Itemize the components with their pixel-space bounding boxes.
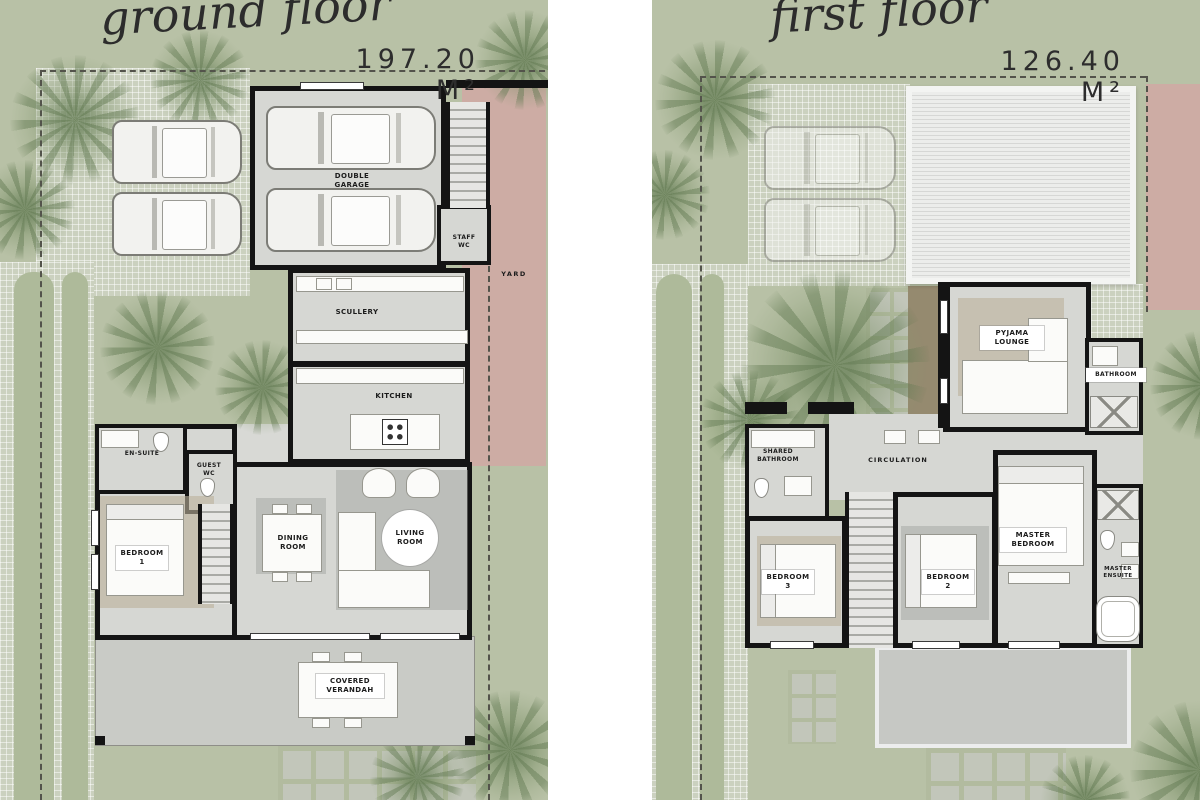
verandah-label: COVERED VERANDAH — [316, 674, 384, 698]
parked-car — [112, 192, 242, 256]
boundary-dashed-left — [700, 76, 702, 800]
palm-tree — [150, 30, 250, 130]
sofa — [962, 360, 1068, 414]
dining-chair — [296, 572, 312, 582]
dining-chair — [272, 572, 288, 582]
armchair — [362, 468, 396, 498]
kitchen-counter — [296, 368, 464, 384]
bathroom-label: BATHROOM — [1086, 368, 1146, 382]
bench — [884, 430, 906, 444]
grass-lane — [700, 274, 724, 800]
dining-chair — [296, 504, 312, 514]
window — [91, 554, 99, 590]
dining-label: DINING ROOM — [272, 534, 314, 552]
bedroom1-label: BEDROOM 1 — [116, 546, 168, 570]
sliding-door — [380, 633, 460, 640]
pyjama-lounge-label: PYJAMA LOUNGE — [980, 326, 1044, 350]
sink — [336, 278, 352, 290]
parked-car-below — [764, 198, 896, 262]
panel-divider — [548, 0, 652, 800]
kitchen-label: KITCHEN — [364, 392, 424, 401]
armchair — [406, 468, 440, 498]
entry-stairs — [446, 102, 490, 208]
exterior-path — [1091, 284, 1143, 338]
master-bedroom-label: MASTER BEDROOM — [1000, 528, 1066, 552]
first-floor-area: 126.40 M² — [945, 46, 1125, 108]
bench — [1008, 572, 1070, 584]
grass-lane — [62, 272, 88, 800]
sofa — [338, 570, 430, 608]
vanity — [1092, 346, 1118, 366]
shower — [1097, 490, 1139, 520]
bed-pillows — [905, 534, 921, 608]
window — [91, 510, 99, 546]
wall-segment — [808, 402, 854, 414]
shower — [1090, 396, 1138, 428]
grass-lane — [656, 274, 692, 800]
bench — [918, 430, 940, 444]
living-label: LIVING ROOM — [382, 510, 438, 566]
interior-stairs — [198, 504, 234, 604]
palm-tree — [100, 290, 215, 405]
ground-floor-area: 197.20 M² — [300, 44, 480, 106]
ensuite-label: EN-SUITE — [112, 450, 172, 458]
outdoor-chair — [344, 718, 362, 728]
staff-wc-label: STAFF WC — [446, 234, 482, 250]
window — [912, 641, 960, 649]
boundary-dashed-left — [40, 70, 42, 800]
vanity — [784, 476, 812, 496]
bed-pillows — [106, 504, 184, 520]
first-floor-stairs — [845, 492, 897, 648]
living-label-text: LIVING ROOM — [390, 529, 430, 547]
palm-tree — [655, 40, 775, 160]
outdoor-chair — [312, 718, 330, 728]
bedroom3-label: BEDROOM 3 — [762, 570, 814, 594]
garage-car — [266, 106, 436, 170]
verandah-post — [465, 736, 475, 745]
bed-pillows — [998, 466, 1084, 484]
verandah-floor — [95, 636, 475, 746]
wall-segment — [745, 402, 787, 414]
bathtub — [1096, 596, 1140, 642]
guest-wc-label: GUEST WC — [190, 462, 228, 478]
boundary-dashed-right — [488, 266, 490, 800]
stepping-stones-path — [788, 670, 836, 744]
bedroom2-label: BEDROOM 2 — [922, 570, 974, 594]
master-ensuite-label: MASTER ENSUITE — [1094, 566, 1142, 580]
garage-label: DOUBLE GARAGE — [325, 172, 379, 190]
basin — [1121, 542, 1139, 557]
parked-car-below — [764, 126, 896, 190]
garage-roof — [906, 86, 1136, 284]
verandah-post — [95, 736, 105, 745]
sliding-door — [250, 633, 370, 640]
boundary-dashed-right — [1146, 76, 1148, 312]
cooktop — [382, 419, 408, 445]
scullery-label: SCULLERY — [320, 308, 394, 317]
circulation-label: CIRCULATION — [856, 456, 940, 464]
window — [940, 300, 948, 334]
dining-chair — [272, 504, 288, 514]
counter — [296, 330, 468, 344]
yard-label: YARD — [492, 270, 536, 278]
verandah-roof — [875, 646, 1131, 748]
bathtub-shared — [751, 430, 815, 448]
garage-car — [266, 188, 436, 252]
sink — [316, 278, 332, 290]
vanity — [101, 430, 139, 448]
outdoor-chair — [312, 652, 330, 662]
floor-plan-sheet: DOUBLE GARAGE STAFF WC YARD SCULLERY KIT… — [0, 0, 1200, 800]
window — [770, 641, 814, 649]
grass-lane — [14, 272, 54, 800]
yard-strip — [1146, 84, 1200, 310]
window — [1008, 641, 1060, 649]
window — [940, 378, 948, 404]
parked-car — [112, 120, 242, 184]
outdoor-chair — [344, 652, 362, 662]
shared-bathroom-label: SHARED BATHROOM — [747, 448, 809, 464]
